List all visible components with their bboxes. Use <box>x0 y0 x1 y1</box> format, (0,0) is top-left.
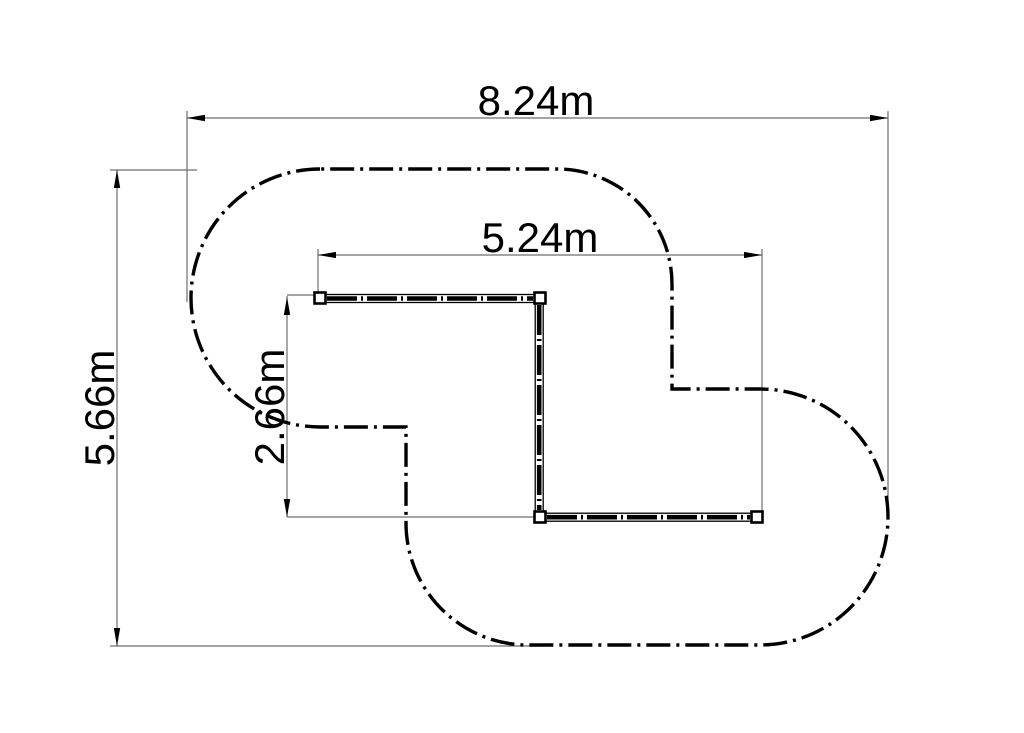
straight-track-top <box>326 295 535 303</box>
drawing-canvas: 8.24m 5.66m 5.24m 2.66m <box>0 0 1024 733</box>
dim-arrow-up-icon <box>284 297 290 315</box>
dim-label-overall-height: 5.66m <box>76 350 123 467</box>
dim-label-track-width: 5.24m <box>482 214 599 261</box>
dim-arrow-down-icon <box>284 499 290 517</box>
dim-arrow-left-icon <box>187 115 205 121</box>
track-plan-drawing: 8.24m 5.66m 5.24m 2.66m <box>0 0 1024 733</box>
dim-track-height: 2.66m <box>246 295 534 517</box>
dim-arrow-left-icon <box>318 252 336 258</box>
dim-overall-height: 5.66m <box>76 170 542 646</box>
track-joint-square <box>752 512 763 523</box>
dim-arrow-up-icon <box>114 170 120 188</box>
straight-track-bottom <box>546 513 752 521</box>
straight-track-vertical <box>535 304 543 512</box>
dim-arrow-right-icon <box>870 115 888 121</box>
dim-label-overall-width: 8.24m <box>478 77 595 124</box>
track-joint-square <box>315 293 326 304</box>
dim-arrow-right-icon <box>744 252 762 258</box>
dim-arrow-down-icon <box>114 628 120 646</box>
track-joint-square <box>535 293 546 304</box>
track-joint-square <box>535 512 546 523</box>
